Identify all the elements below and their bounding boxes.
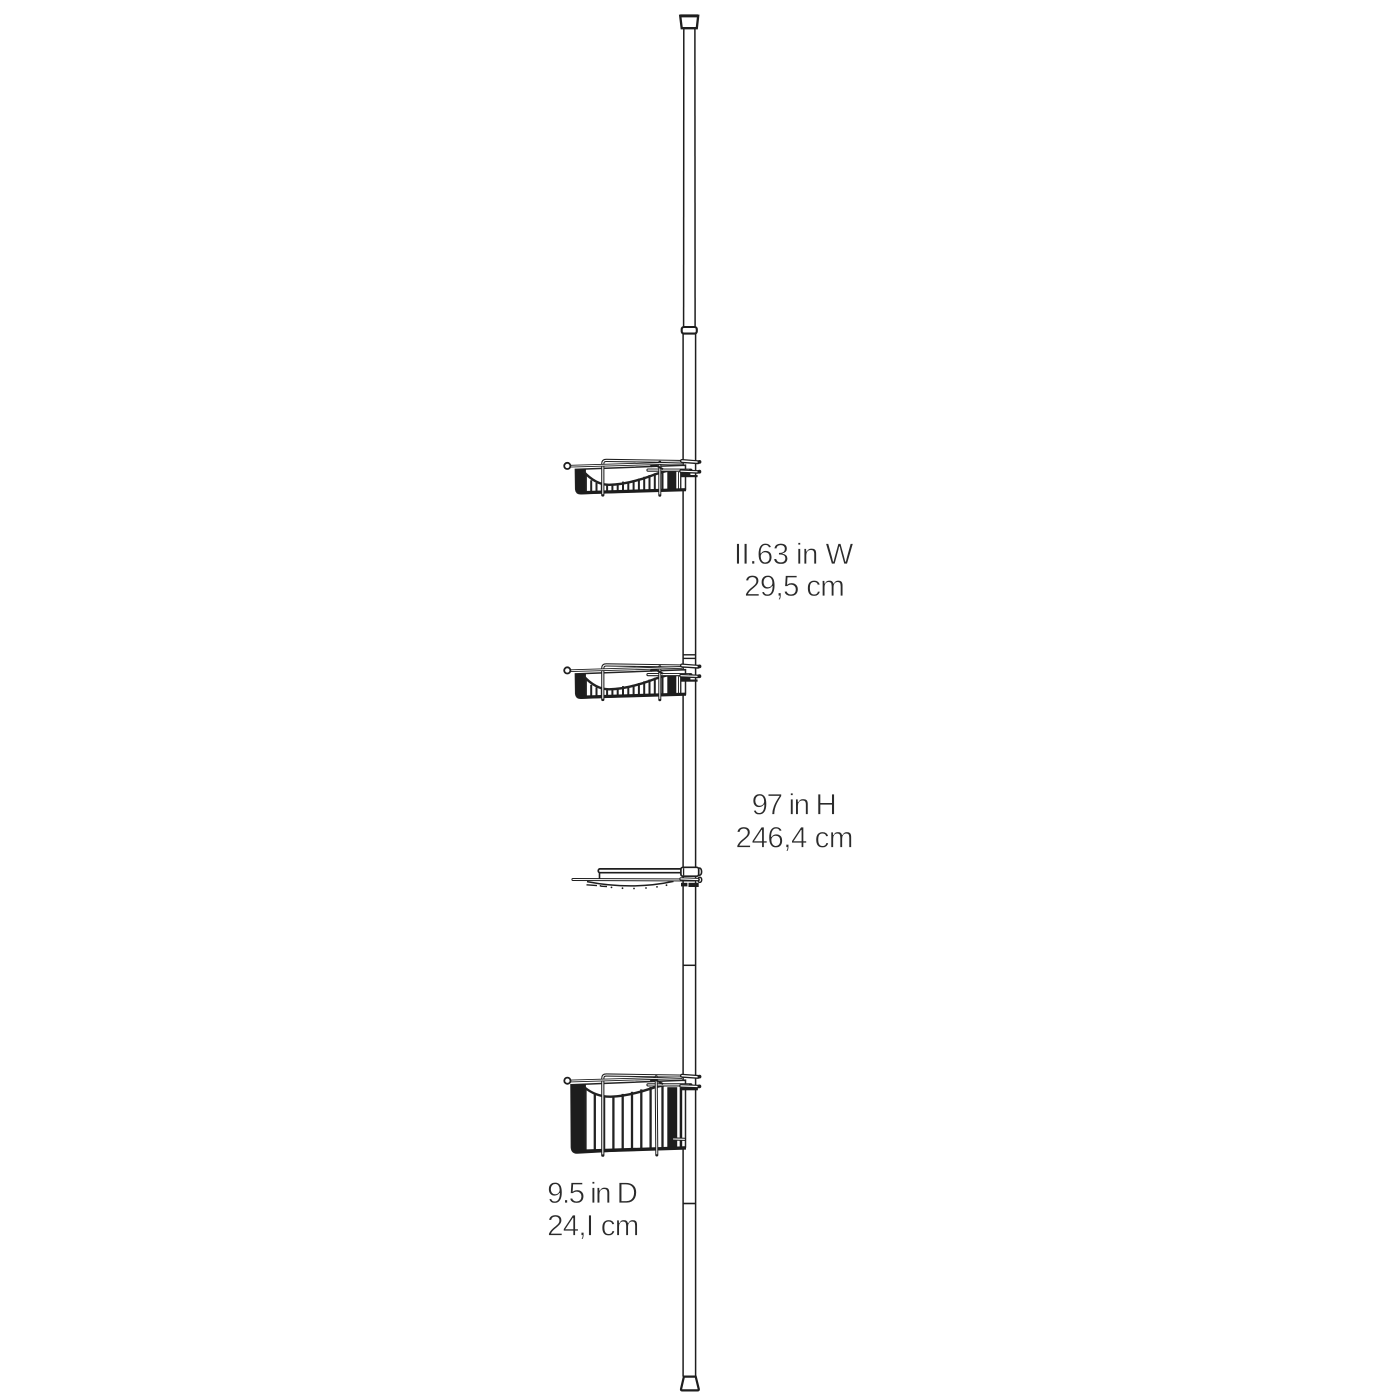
svg-text:29,5 cm: 29,5 cm	[744, 570, 845, 603]
svg-text:II.63 in W: II.63 in W	[734, 538, 854, 571]
svg-text:24,I cm: 24,I cm	[547, 1210, 639, 1243]
svg-text:97 in H: 97 in H	[752, 788, 837, 821]
svg-text:246,4 cm: 246,4 cm	[736, 821, 854, 854]
svg-text:9.5 in D: 9.5 in D	[547, 1177, 638, 1210]
